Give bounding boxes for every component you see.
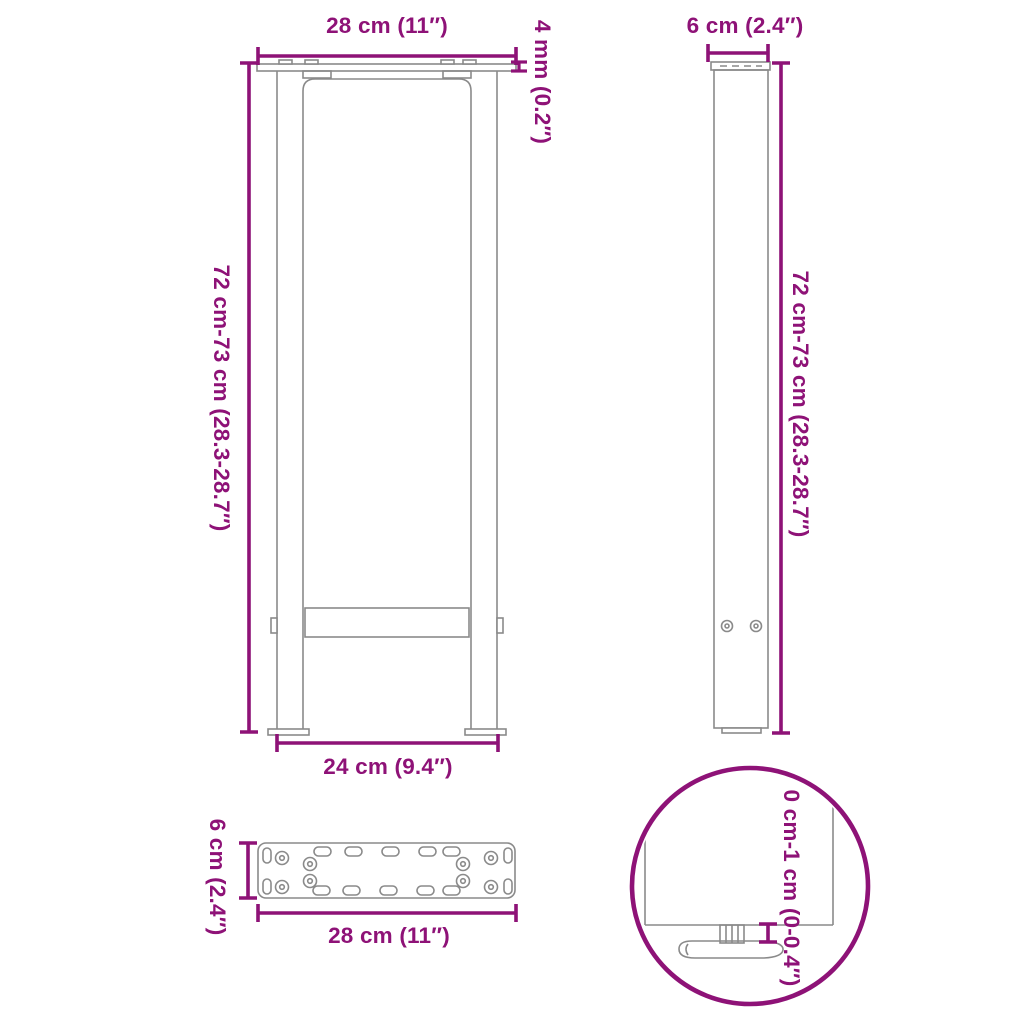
plate-slot xyxy=(504,879,512,894)
foot-detail-drawing xyxy=(632,768,868,1004)
plate-screw-holes xyxy=(276,852,498,894)
crossbar-side-tab xyxy=(497,618,503,633)
front-height-label: 72 cm-73 cm (28.3-28.7″) xyxy=(208,265,234,532)
plate-slot xyxy=(504,848,512,863)
plate-width-dimension-line xyxy=(258,904,516,922)
plate-depth-dimension-line xyxy=(239,843,257,898)
plate-depth-label: 6 cm (2.4″) xyxy=(204,819,230,936)
detail-adjust-dimension-marker xyxy=(759,924,777,942)
dimension-diagram: 28 cm (11″) 4 mm (0.2″) 72 cm-73 cm (28.… xyxy=(0,0,1024,1024)
screw-icon xyxy=(725,624,729,628)
detail-foot-pad-lip xyxy=(686,944,688,955)
front-plate-thickness-label: 4 mm (0.2″) xyxy=(529,20,555,144)
plate-top-view-drawing xyxy=(258,843,515,898)
plate-tab xyxy=(441,60,454,64)
plate-tab xyxy=(463,60,476,64)
leg-hook xyxy=(443,71,471,78)
screw-icon xyxy=(754,624,758,628)
side-depth-dimension-line xyxy=(708,44,768,62)
leg-hook xyxy=(303,71,331,78)
front-width-top-dimension-line xyxy=(258,47,516,65)
front-width-bottom-dimension-line xyxy=(277,734,498,752)
plate-slot xyxy=(263,879,271,894)
plate-slot xyxy=(263,848,271,863)
detail-leg-bottom xyxy=(645,770,833,925)
side-depth-label: 6 cm (2.4″) xyxy=(687,13,804,39)
screw-icon xyxy=(751,621,762,632)
front-view-drawing xyxy=(257,60,516,735)
side-foot-plate xyxy=(722,728,761,733)
diagram-canvas xyxy=(0,0,1024,1024)
right-foot-plate xyxy=(465,729,506,735)
front-width-top-label: 28 cm (11″) xyxy=(326,13,448,39)
front-width-bottom-label: 24 cm (9.4″) xyxy=(323,754,453,780)
screw-icon xyxy=(722,621,733,632)
crossbar-side-tab xyxy=(271,618,277,633)
plate-horizontal-slots-top xyxy=(314,847,460,856)
plate-tab xyxy=(305,60,318,64)
left-foot-plate xyxy=(268,729,309,735)
plate-tab xyxy=(279,60,292,64)
front-top-plate xyxy=(257,64,516,71)
crossbar xyxy=(305,608,469,637)
plate-horizontal-slots-bottom xyxy=(313,886,460,895)
side-height-label: 72 cm-73 cm (28.3-28.7″) xyxy=(787,271,813,538)
plate-width-label: 28 cm (11″) xyxy=(328,923,450,949)
leg-inner-cutout xyxy=(303,79,471,729)
mounting-plate-outline xyxy=(258,843,515,898)
front-height-dimension-line xyxy=(240,63,258,732)
detail-adjustable-height-label: 0 cm-1 cm (0-0.4″) xyxy=(778,790,804,987)
side-view-drawing xyxy=(711,62,770,733)
